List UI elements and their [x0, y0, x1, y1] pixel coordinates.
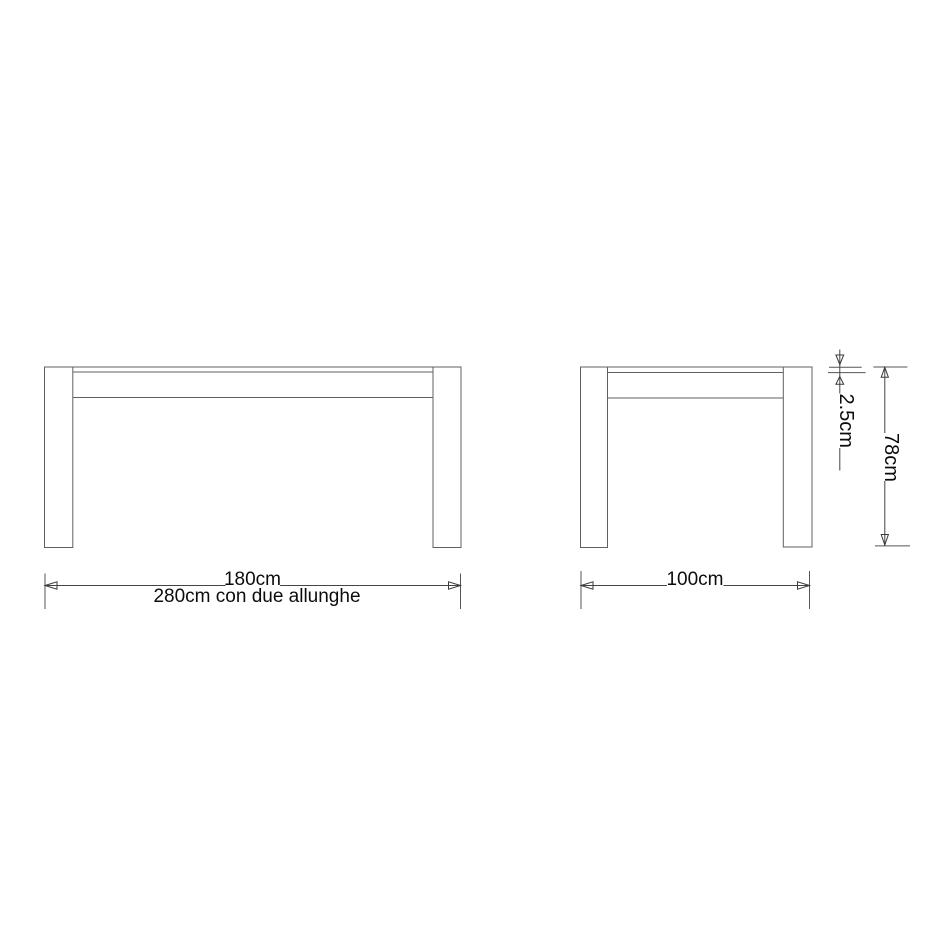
- svg-text:280cm con due allunghe: 280cm con due allunghe: [153, 586, 360, 607]
- svg-text:78cm: 78cm: [880, 433, 902, 482]
- svg-text:100cm: 100cm: [666, 569, 723, 590]
- svg-text:2.5cm: 2.5cm: [835, 394, 857, 448]
